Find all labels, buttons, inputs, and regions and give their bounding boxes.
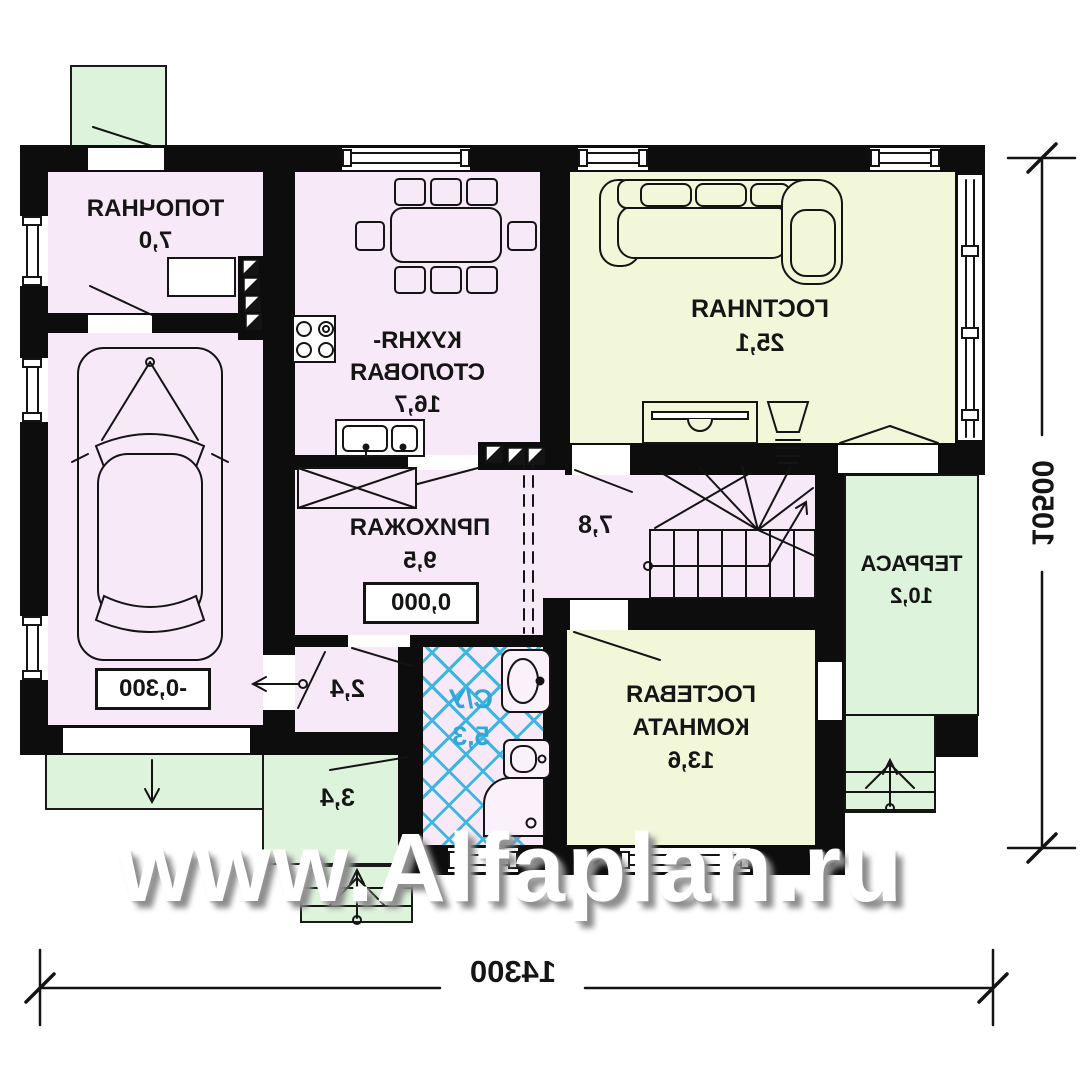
staircase-icon: [644, 466, 815, 598]
dining-table-icon: [356, 179, 536, 293]
dashed-opening: [524, 457, 533, 633]
sofa-icon: [600, 180, 842, 284]
boiler-unit-icon: [168, 258, 235, 296]
car-icon: [72, 348, 228, 660]
toilet-icon: [504, 740, 550, 778]
watermark: www.Alfaplan.ru: [118, 812, 904, 924]
driveway-arrow: [145, 760, 159, 802]
floor-plan: ТОПОЧНАЯ 7,0 КУХНЯ- СТОЛОВАЯ 16,7 ГОСТИН…: [0, 0, 1080, 1080]
garage-door-arrow: [253, 677, 307, 691]
kitchen-sink-icon: [336, 420, 424, 458]
tv-stand-icon: [643, 402, 757, 443]
washbasin-icon: [502, 650, 550, 712]
fireplace-flue-icon: [768, 402, 808, 463]
wardrobe-icon: [298, 468, 416, 508]
stove-icon: [293, 316, 335, 362]
terrace-steps-lines: [845, 760, 935, 812]
terrace-outline: [845, 475, 978, 812]
